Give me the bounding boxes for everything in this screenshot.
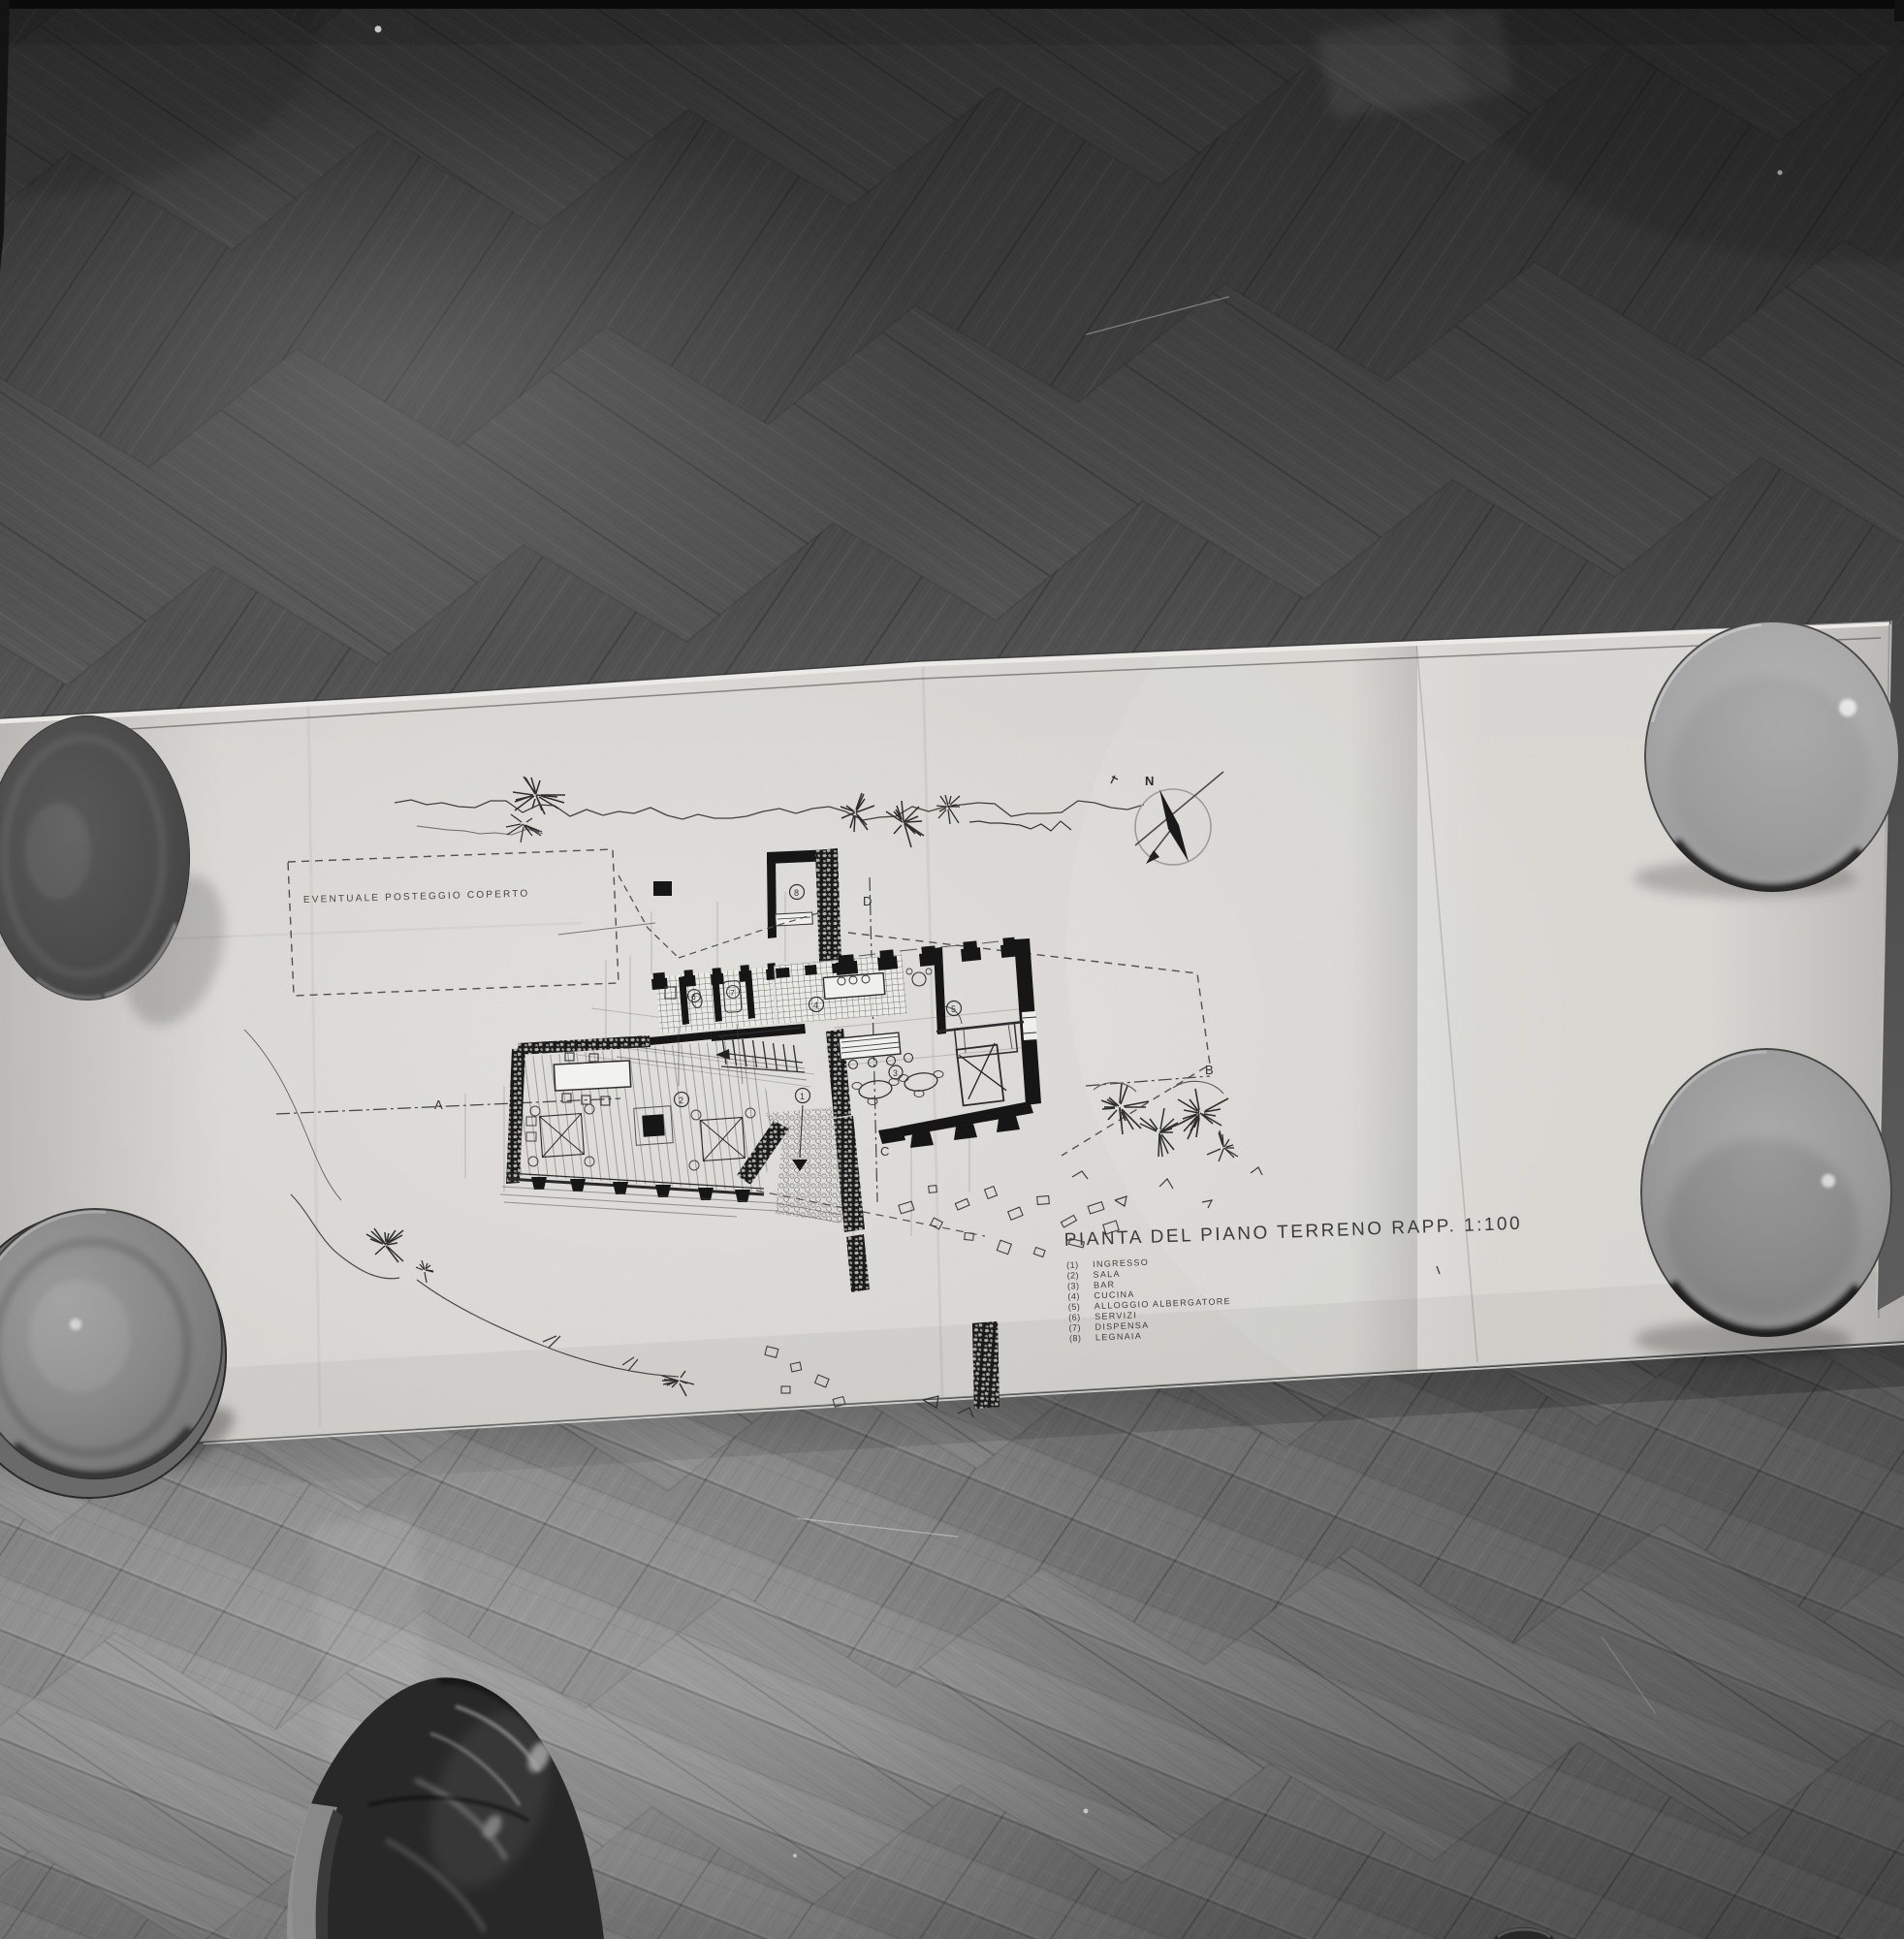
svg-text:A: A [434,1097,443,1112]
svg-text:B: B [1205,1063,1214,1077]
svg-text:(7): (7) [1068,1322,1081,1332]
svg-text:BAR: BAR [1094,1280,1116,1290]
svg-text:(5): (5) [1068,1302,1081,1312]
svg-text:2: 2 [679,1096,683,1105]
svg-text:C: C [880,1144,889,1159]
svg-text:(8): (8) [1069,1333,1082,1343]
svg-text:5: 5 [951,1004,956,1014]
svg-text:1: 1 [800,1092,805,1101]
svg-text:8: 8 [794,888,799,898]
svg-text:LEGNAIA: LEGNAIA [1095,1331,1142,1343]
svg-text:(4): (4) [1067,1291,1080,1301]
svg-text:SALA: SALA [1093,1269,1121,1280]
svg-text:6: 6 [691,992,696,1001]
svg-text:7: 7 [730,988,735,998]
svg-text:INGRESSO: INGRESSO [1093,1257,1149,1269]
svg-text:4: 4 [813,1001,818,1010]
svg-text:N: N [1145,774,1154,788]
svg-text:(1): (1) [1066,1260,1079,1270]
svg-text:D: D [863,894,872,908]
svg-text:(6): (6) [1068,1313,1081,1322]
svg-text:3: 3 [893,1068,898,1078]
svg-text:SERVIZI: SERVIZI [1095,1310,1137,1321]
svg-text:(3): (3) [1067,1281,1080,1290]
svg-text:(2): (2) [1066,1270,1079,1280]
svg-text:CUCINA: CUCINA [1094,1289,1135,1301]
